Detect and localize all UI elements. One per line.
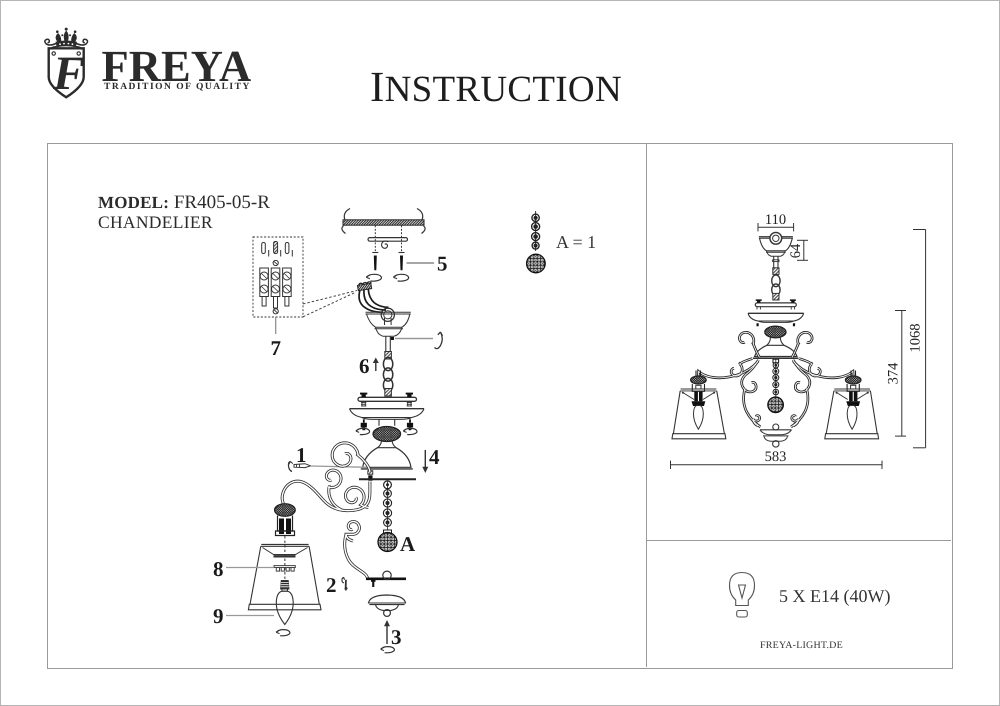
svg-text:9: 9	[213, 604, 224, 628]
svg-text:7: 7	[270, 336, 281, 360]
svg-text:2: 2	[326, 573, 337, 597]
svg-text:8: 8	[213, 557, 224, 581]
svg-text:110: 110	[765, 212, 786, 228]
svg-text:1068: 1068	[908, 324, 924, 353]
svg-text:64: 64	[788, 243, 804, 258]
svg-text:F: F	[52, 47, 85, 100]
svg-text:374: 374	[886, 362, 902, 385]
svg-text:5: 5	[437, 252, 448, 276]
svg-text:A: A	[400, 532, 416, 556]
svg-text:583: 583	[765, 449, 787, 465]
svg-text:6: 6	[359, 354, 370, 378]
svg-text:3: 3	[391, 625, 402, 649]
svg-text:4: 4	[429, 445, 440, 469]
